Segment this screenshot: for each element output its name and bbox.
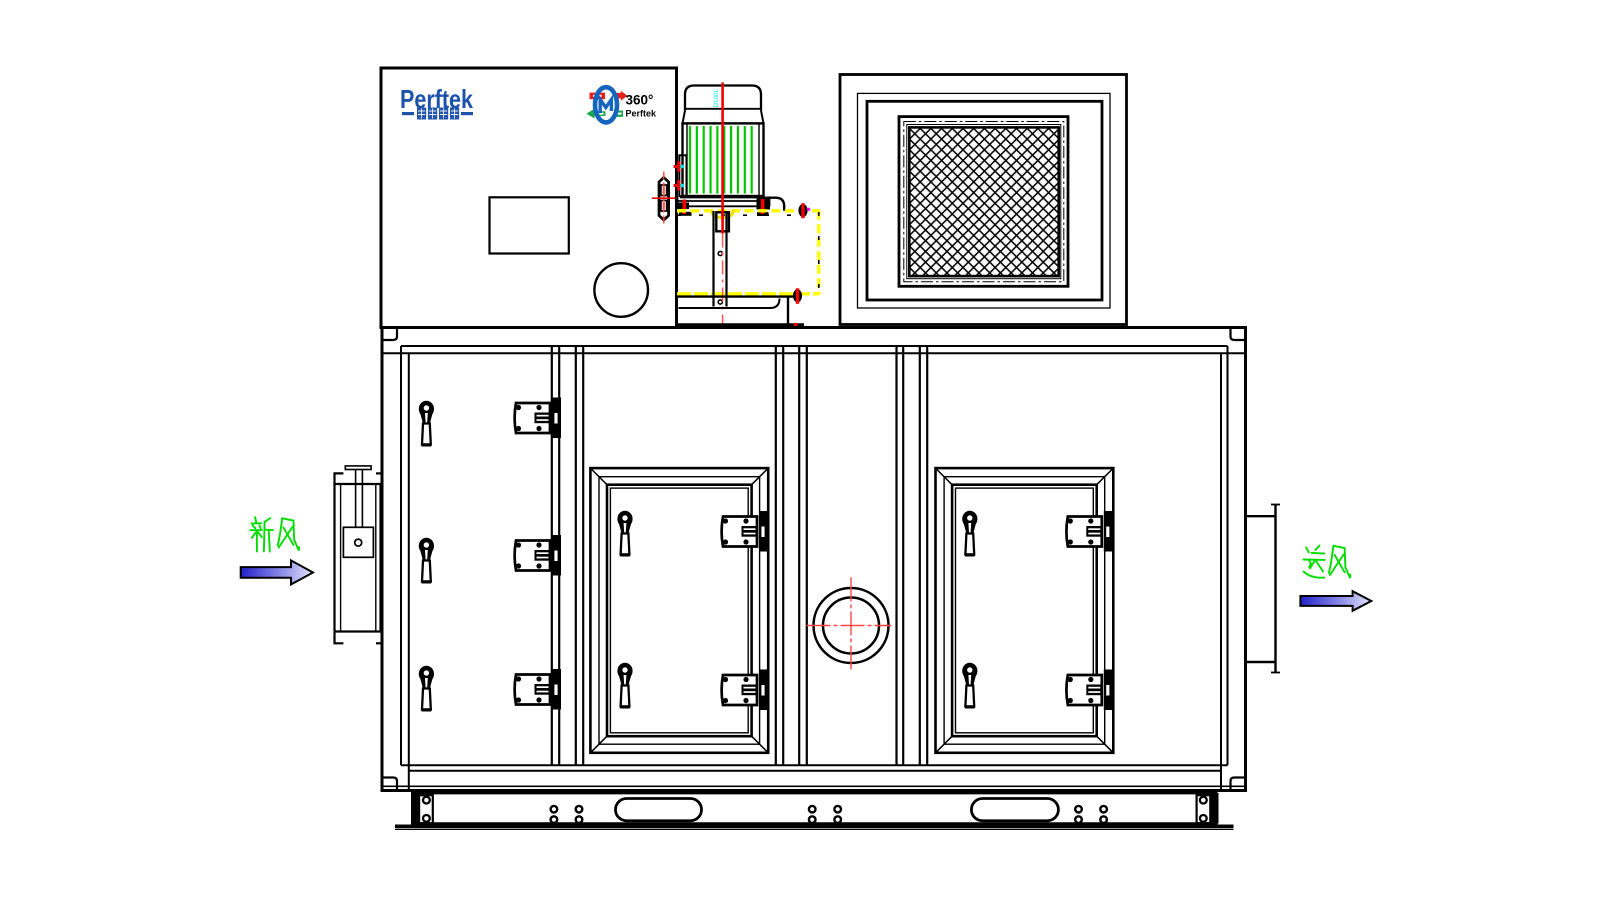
- svg-text:D100L: D100L: [713, 88, 720, 107]
- svg-text:Perftek: Perftek: [626, 109, 658, 119]
- svg-text:360°: 360°: [626, 93, 654, 108]
